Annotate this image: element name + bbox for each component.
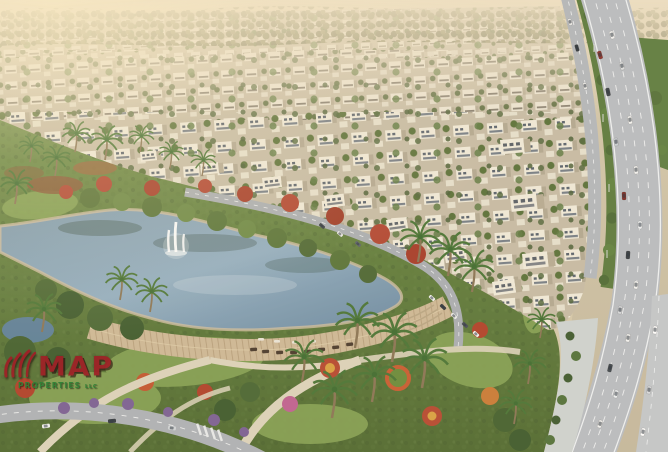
aerial-development-render: MAP PROPERTIES LLC	[0, 0, 668, 452]
warm-tint	[0, 0, 668, 452]
scene-canvas	[0, 0, 668, 452]
